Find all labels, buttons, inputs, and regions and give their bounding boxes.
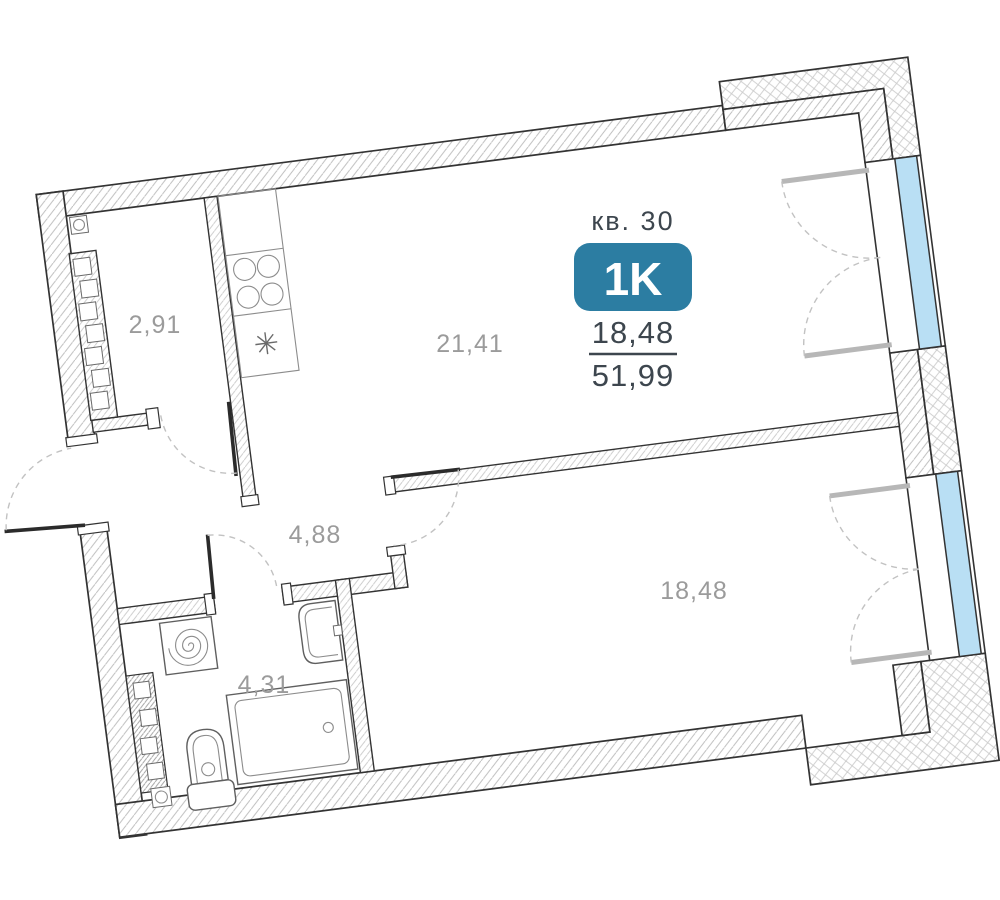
window-casement-icon <box>782 170 869 181</box>
kitchen-sink-icon <box>254 331 279 356</box>
door-swing-icon <box>161 407 237 482</box>
stove-icon <box>232 254 284 310</box>
casement-swing-arc <box>840 569 931 663</box>
top-wall <box>36 105 725 219</box>
door-jamb <box>281 583 293 605</box>
wall-wardrobe-kitchen <box>204 196 256 498</box>
interior-walls <box>37 113 934 805</box>
toilet-icon <box>180 727 237 811</box>
total-area-value: 51,99 <box>592 358 675 393</box>
door-leaf <box>6 521 83 535</box>
room-label-wardrobe: 2,91 <box>129 311 182 339</box>
window-kitchen <box>781 155 946 364</box>
living-area-value: 18,48 <box>592 315 675 350</box>
vent-duct-icon <box>151 786 172 807</box>
room-label-bedroom: 18,48 <box>660 577 728 605</box>
door-leaf <box>206 536 216 597</box>
casement-swing-arc <box>830 485 921 579</box>
door-jamb <box>384 476 396 495</box>
wardrobe-room-door <box>160 404 238 483</box>
door-jamb <box>387 545 406 556</box>
vent-duct-icon <box>69 215 88 234</box>
casement-swing-arc <box>793 257 892 356</box>
door-jamb <box>146 408 160 429</box>
window-bedroom <box>829 471 986 671</box>
washing-machine-icon <box>159 617 217 675</box>
apartment-number: кв. 30 <box>591 206 674 236</box>
wall-kitchen-bedroom <box>392 412 900 492</box>
bathroom-door <box>206 527 277 597</box>
room-label-kitchen-living: 21,41 <box>436 330 504 358</box>
window-casement-icon <box>804 345 891 356</box>
floorplan-page: 2,91 21,41 4,88 4,31 18,48 кв. 30 1K 18,… <box>0 0 1000 900</box>
door-swing-icon <box>0 448 81 530</box>
room-label-bathroom: 4,31 <box>238 671 291 699</box>
floor-plan <box>0 57 999 883</box>
window-casement-icon <box>830 485 910 495</box>
apartment-header: кв. 30 1K 18,48 51,99 <box>574 206 692 393</box>
door-swing-icon <box>208 527 277 595</box>
door-jamb <box>241 495 259 507</box>
floorplan-canvas: 2,91 21,41 4,88 4,31 18,48 кв. 30 1K 18,… <box>0 0 1000 900</box>
type-badge-label: 1K <box>604 253 663 305</box>
entry-door <box>0 448 83 535</box>
room-label-hallway: 4,88 <box>289 521 342 549</box>
casement-swing-arc <box>782 170 881 269</box>
bathroom-sink-icon <box>297 600 345 665</box>
